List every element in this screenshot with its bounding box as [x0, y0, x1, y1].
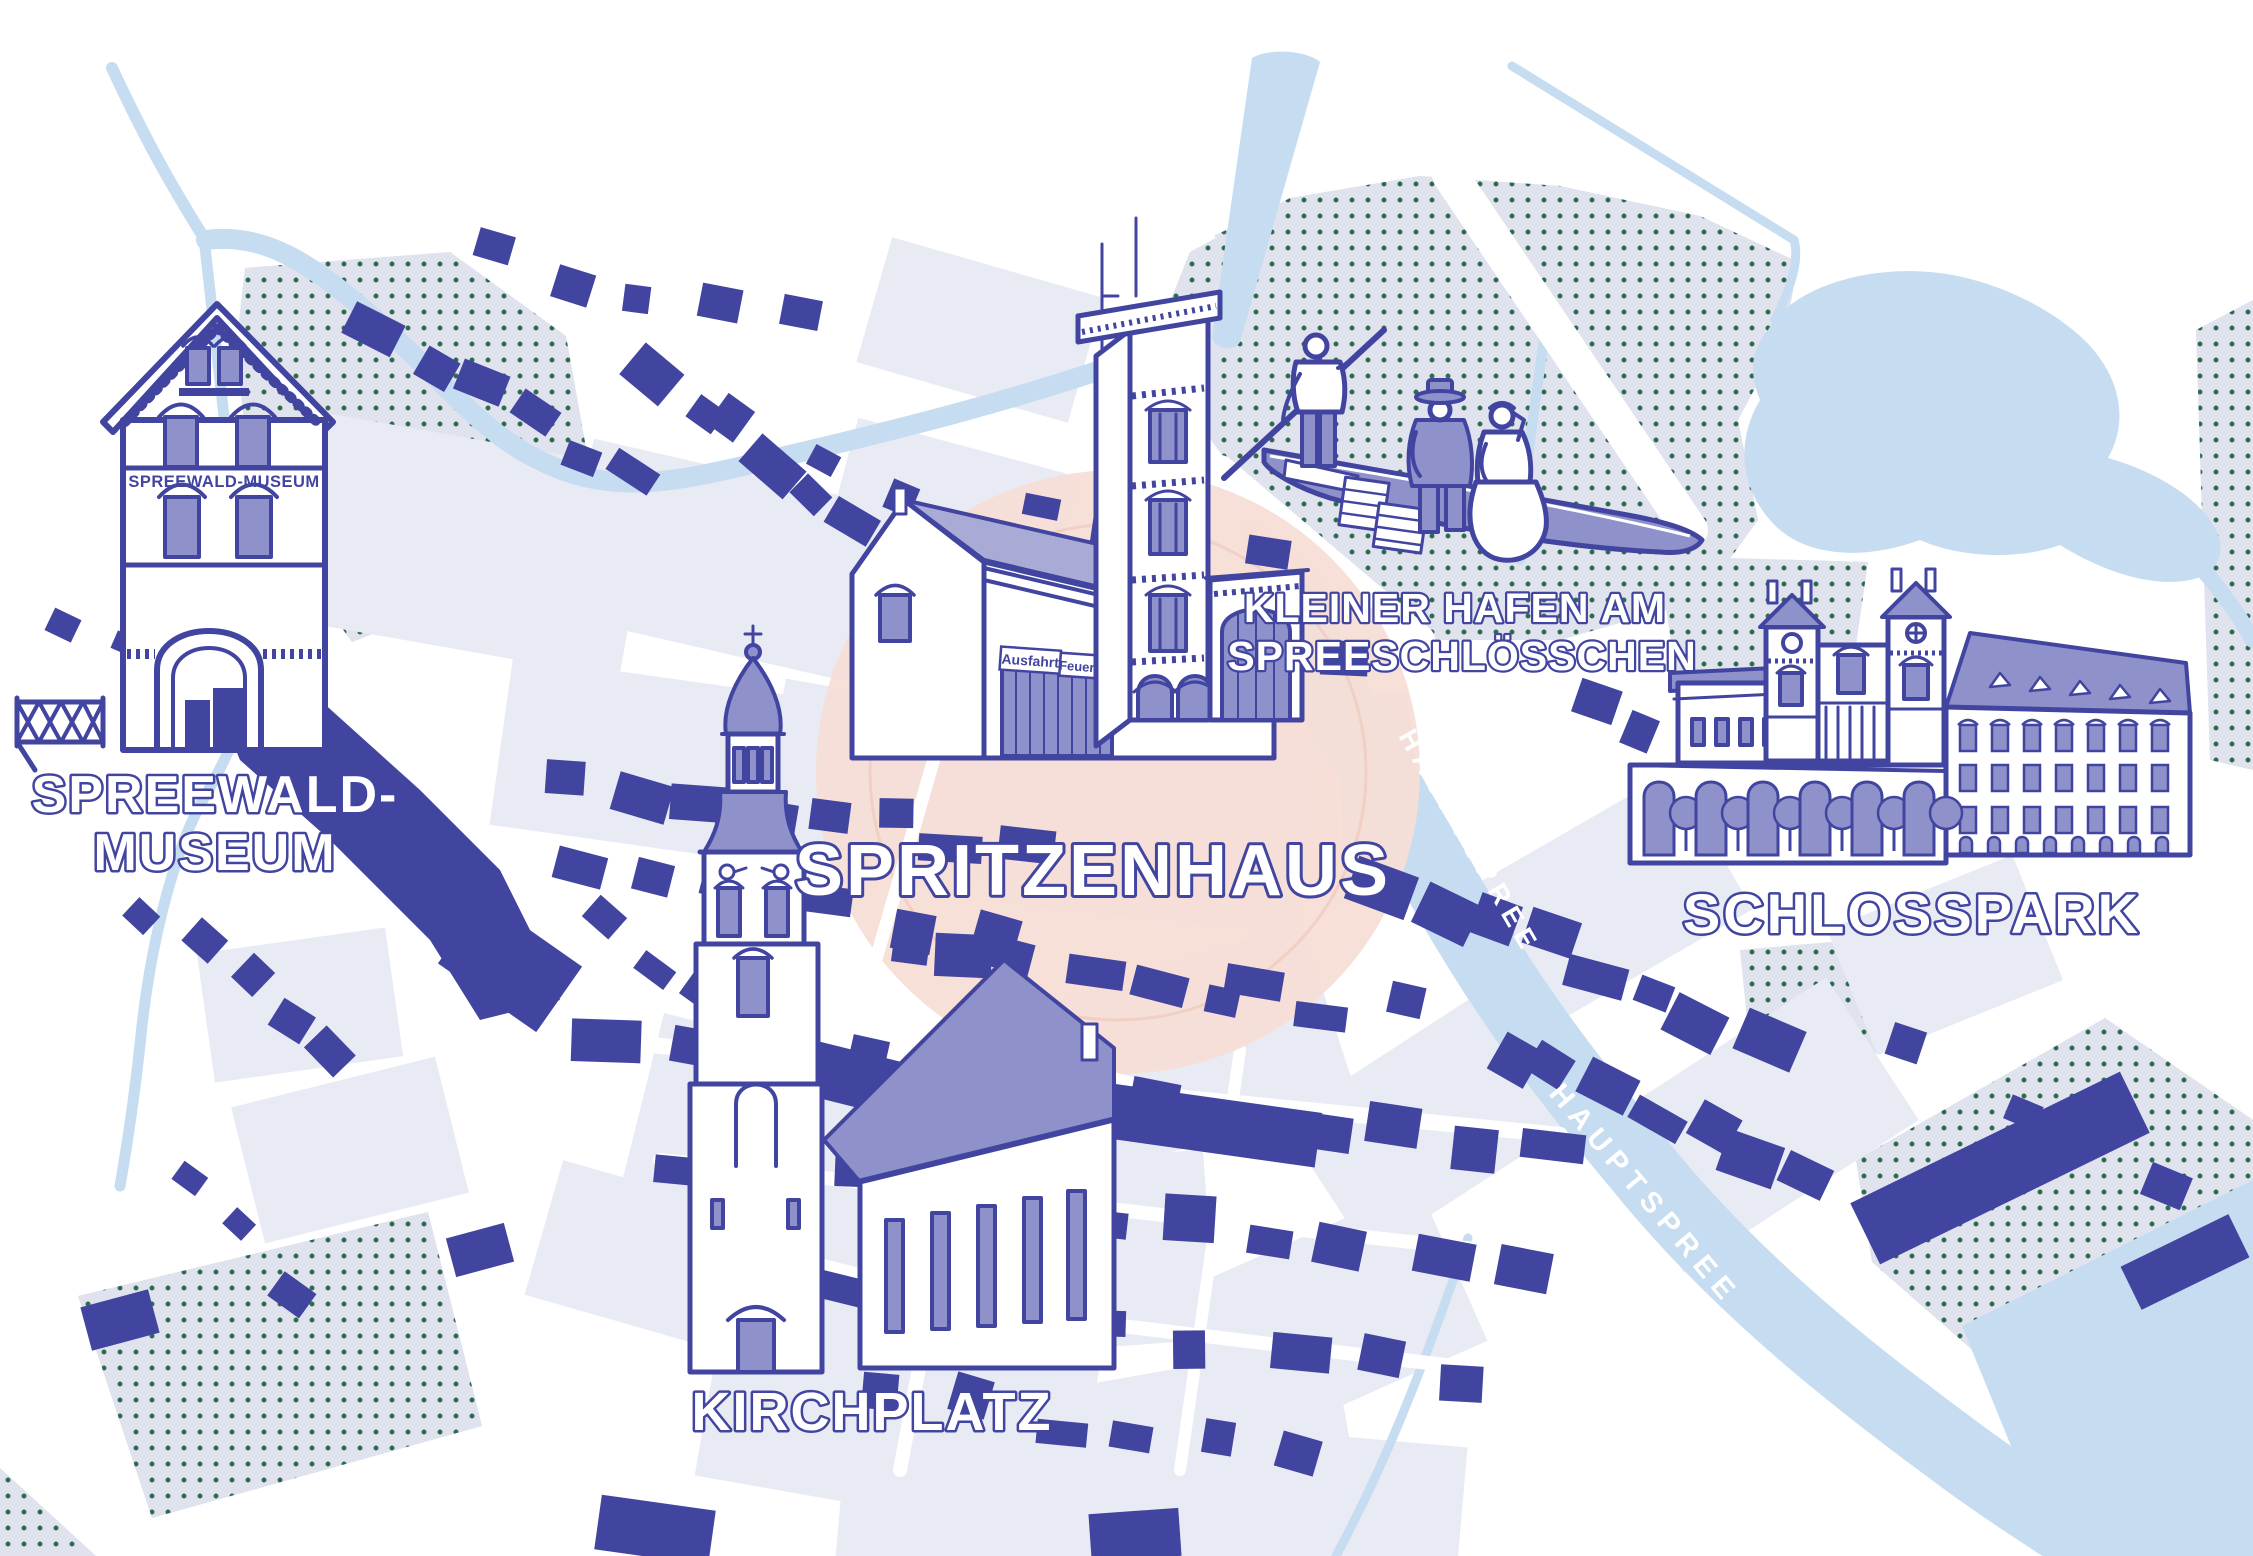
building-footprint [545, 759, 586, 796]
label-spreewald-museum-2[interactable]: MUSEUM [93, 824, 336, 882]
city-block [231, 1057, 469, 1244]
building-footprint [1571, 678, 1623, 725]
lake [1744, 271, 2220, 582]
building-footprint [1619, 710, 1660, 754]
bridge-railing [17, 698, 103, 770]
city-block [197, 927, 403, 1082]
orangery-window [1696, 782, 1726, 855]
museum-window [165, 497, 199, 557]
building-footprint [582, 895, 627, 940]
church-door [738, 1320, 774, 1372]
building-footprint [622, 284, 651, 314]
building-footprint [934, 933, 993, 979]
label-kleiner-hafen-1[interactable]: KLEINER HAFEN AM [1244, 585, 1666, 631]
label-spritzenhaus[interactable]: SPRITZENHAUS [795, 831, 1391, 911]
building-footprint [171, 1161, 208, 1196]
museum-window [165, 417, 197, 467]
building-footprint [1163, 1193, 1217, 1243]
building-footprint [552, 846, 609, 890]
orangery-window [1644, 782, 1674, 855]
orangery [1630, 765, 1962, 863]
gable-window [219, 348, 241, 384]
label-kleiner-hafen-2[interactable]: SPREESCHLÖSSCHEN [1227, 633, 1696, 679]
building-footprint [1633, 975, 1676, 1013]
building-footprint [1386, 981, 1427, 1019]
building-footprint [594, 1495, 716, 1556]
palace-tower-right [1882, 569, 1950, 767]
city-block [856, 237, 1103, 423]
building-footprint [697, 283, 744, 324]
church-spire [725, 658, 780, 734]
building-footprint [222, 1207, 256, 1241]
label-schlosspark[interactable]: SCHLOSSPARK [1683, 882, 2141, 945]
building-footprint [1088, 1508, 1181, 1556]
palace-center [1818, 645, 1888, 761]
orangery-window [1852, 782, 1882, 855]
building-footprint [1270, 1332, 1332, 1374]
building-footprint [571, 1018, 642, 1063]
tower-window [1150, 595, 1186, 651]
orangery-window [1904, 782, 1934, 855]
building-footprint [808, 798, 851, 834]
orangery-tree [1930, 797, 1962, 829]
building-footprint [619, 342, 684, 406]
map-canvas: SPREEWALD-MUSEUM Ausfahrt Feuerwehr [0, 0, 2253, 1556]
gable-window [187, 348, 209, 384]
orangery-window [1800, 782, 1830, 855]
building-footprint [891, 923, 932, 966]
building-footprint [44, 608, 81, 643]
building-footprint [1173, 1330, 1205, 1369]
illustrated-town-map: SPREEWALD-MUSEUM Ausfahrt Feuerwehr [0, 0, 2253, 1556]
building-footprint [1494, 1244, 1554, 1294]
label-kirchplatz[interactable]: KIRCHPLATZ [692, 1382, 1053, 1442]
building-footprint [1450, 1126, 1499, 1174]
tower-side [1096, 330, 1130, 746]
orangery-window [1748, 782, 1778, 855]
building-footprint [879, 798, 914, 828]
building-footprint [1364, 1101, 1422, 1149]
building-footprint [1201, 1418, 1236, 1457]
hall-window [880, 595, 910, 641]
label-spreewald-museum-1[interactable]: SPREEWALD- [32, 766, 399, 824]
building-footprint [633, 950, 676, 990]
water-channel [112, 68, 204, 238]
building-footprint [1660, 992, 1729, 1055]
building-footprint [473, 227, 516, 265]
museum-window [237, 497, 271, 557]
building-footprint [631, 857, 675, 898]
building-footprint [1439, 1364, 1484, 1403]
tower-window [1150, 410, 1186, 462]
building-footprint [706, 393, 755, 443]
building-footprint [446, 1223, 514, 1277]
bell-tier [704, 792, 802, 852]
museum-window [237, 417, 269, 467]
museum-facade-sign: SPREEWALD-MUSEUM [128, 473, 319, 491]
palace-right-wing [1946, 633, 2190, 855]
spreewald-museum-illustration[interactable]: SPREEWALD-MUSEUM [17, 304, 333, 770]
building-footprint [550, 264, 596, 307]
tower-window [1150, 500, 1186, 554]
building-footprint [779, 294, 823, 331]
